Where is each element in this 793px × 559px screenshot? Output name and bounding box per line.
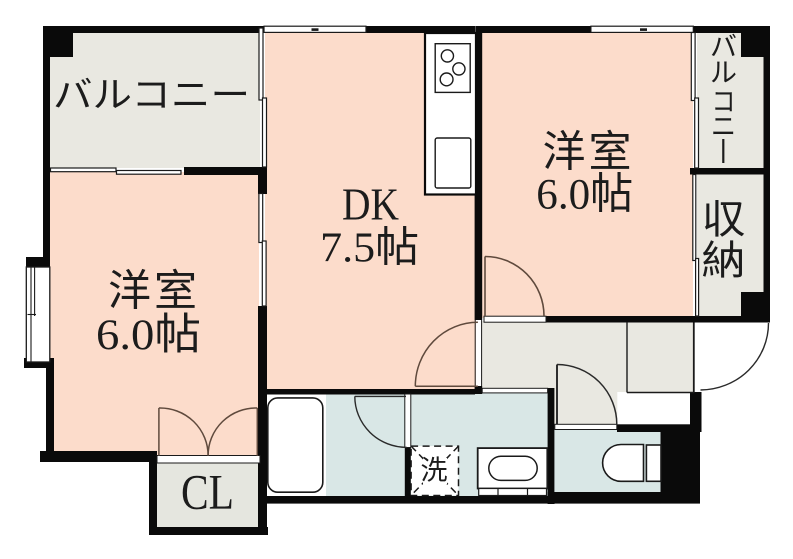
svg-text:ニ: ニ [711,112,736,142]
svg-text:納: 納 [702,238,746,283]
svg-text:7.5帖: 7.5帖 [320,226,419,272]
svg-text:バルコニー: バルコニー [53,75,250,115]
svg-text:CL: CL [181,464,234,520]
svg-text:洋室: 洋室 [108,268,200,316]
svg-text:DK: DK [342,179,399,230]
svg-text:6.0帖: 6.0帖 [96,312,201,359]
svg-text:ル: ル [710,58,737,88]
svg-text:6.0帖: 6.0帖 [536,172,633,219]
svg-text:洗: 洗 [421,456,448,486]
svg-text:収: 収 [702,197,746,242]
svg-text:洋室: 洋室 [543,129,635,177]
